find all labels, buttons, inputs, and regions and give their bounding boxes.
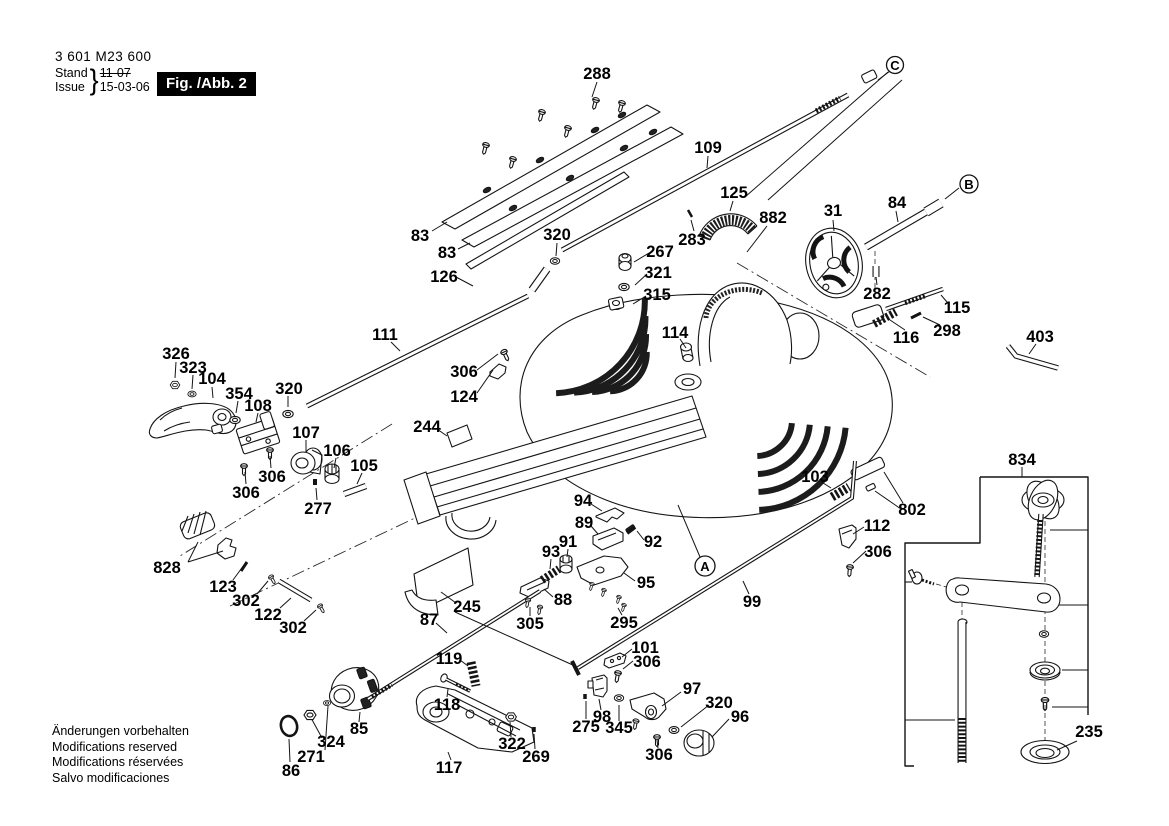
part-label-95-46: 95 (637, 574, 655, 592)
part-label-306-55: 306 (864, 543, 892, 561)
part-label-244-23: 244 (413, 418, 441, 436)
part-label-93-45: 93 (542, 543, 560, 561)
part-label-302-40: 302 (279, 619, 307, 637)
part-label-87-49: 87 (420, 611, 438, 629)
part-label-306-61: 306 (633, 653, 661, 671)
part-label-828-36: 828 (153, 559, 181, 577)
clip-112 (839, 525, 856, 548)
knob-85 (325, 661, 384, 717)
part-label-116-17: 116 (893, 329, 920, 347)
part-label-89-42: 89 (575, 514, 593, 532)
bracket-98 (588, 675, 607, 697)
ref-marker-C: C (887, 57, 904, 74)
part-label-283-8: 283 (678, 231, 706, 249)
inset-box (905, 477, 1088, 766)
lever-104 (149, 403, 236, 438)
part-label-288-0: 288 (583, 65, 611, 83)
part-label-83-2: 83 (411, 227, 429, 245)
part-label-97-72: 97 (683, 680, 701, 698)
part-label-306-33: 306 (258, 468, 286, 486)
part-label-345-71: 345 (605, 719, 633, 737)
part-label-103-52: 103 (801, 468, 829, 486)
part-label-267-9: 267 (646, 243, 674, 261)
part-label-321-10: 321 (644, 264, 672, 282)
part-label-295-51: 295 (610, 614, 638, 632)
part-label-91-44: 91 (559, 533, 577, 551)
part-label-118-59: 118 (434, 696, 461, 714)
part-label-109-1: 109 (694, 139, 722, 157)
part-label-305-50: 305 (516, 615, 544, 633)
part-label-122-39: 122 (254, 606, 282, 624)
part-label-114-20: 114 (662, 324, 689, 342)
part-label-117-62: 117 (436, 759, 463, 777)
part-label-99-57: 99 (743, 593, 761, 611)
part-label-124-22: 124 (450, 388, 478, 406)
part-label-269-64: 269 (522, 748, 550, 766)
part-label-306-75: 306 (645, 746, 673, 764)
part-label-115-15: 115 (944, 299, 971, 317)
part-label-282-14: 282 (863, 285, 891, 303)
part-label-112-54: 112 (864, 517, 891, 535)
ref-marker-A: A (695, 556, 715, 576)
part-label-31-12: 31 (824, 202, 842, 220)
part-label-125-6: 125 (720, 184, 748, 202)
handwheel (799, 223, 868, 303)
part-label-84-13: 84 (888, 194, 907, 212)
clip-101 (604, 653, 626, 668)
part-label-320-4: 320 (543, 226, 571, 244)
part-label-92-43: 92 (644, 533, 662, 551)
part-label-298-16: 298 (933, 322, 961, 340)
part-label-88-47: 88 (554, 591, 572, 609)
part-label-104-26: 104 (198, 370, 226, 388)
part-label-315-11: 315 (643, 286, 671, 304)
part-label-306-34: 306 (232, 484, 260, 502)
part-label-324-67: 324 (317, 733, 345, 751)
part-label-275-70: 275 (572, 718, 600, 736)
part-label-834-56: 834 (1008, 451, 1036, 469)
part-label-245-48: 245 (453, 598, 481, 616)
part-label-306-21: 306 (450, 363, 478, 381)
part-label-235-76: 235 (1075, 723, 1103, 741)
part-label-320-73: 320 (705, 694, 733, 712)
part-label-85-68: 85 (350, 720, 368, 738)
part-label-96-74: 96 (731, 708, 749, 726)
svg-text:B: B (964, 177, 973, 192)
parts-diagram-page: 3 601 M23 600 Stand Issue } 11-07 15-03-… (0, 0, 1169, 826)
part-label-105-32: 105 (350, 457, 378, 475)
scale-segment (699, 214, 757, 240)
part-label-108-28: 108 (244, 397, 272, 415)
part-label-126-5: 126 (430, 268, 458, 286)
part-label-320-29: 320 (275, 380, 303, 398)
part-label-107-30: 107 (292, 424, 320, 442)
part-label-94-41: 94 (574, 492, 593, 510)
part-label-802-53: 802 (898, 501, 926, 519)
exploded-view-drawing: 2881098383320126125882283267321315318428… (0, 0, 1169, 826)
part-label-83-3: 83 (438, 244, 456, 262)
plate-244 (447, 425, 472, 447)
nut-106 (325, 464, 339, 484)
knob-96 (684, 730, 714, 756)
part-label-403-18: 403 (1026, 328, 1054, 346)
part-label-277-35: 277 (304, 500, 332, 518)
svg-text:C: C (890, 58, 900, 73)
bracket-97 (630, 693, 666, 720)
part-label-119-58: 119 (436, 650, 463, 668)
svg-text:A: A (700, 559, 710, 574)
ref-marker-B: B (960, 175, 978, 193)
part-label-111-19: 111 (372, 326, 398, 344)
part-label-106-31: 106 (323, 442, 351, 460)
part-label-882-7: 882 (759, 209, 787, 227)
cap-86 (279, 714, 300, 737)
